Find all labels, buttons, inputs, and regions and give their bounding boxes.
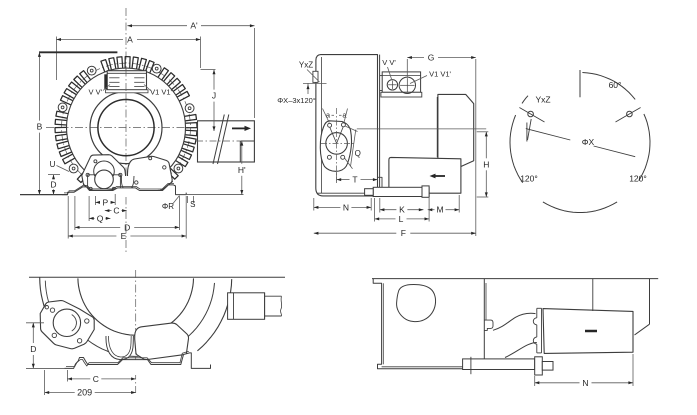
svg-text:ΦX–3x120°: ΦX–3x120° bbox=[277, 96, 316, 105]
svg-text:N: N bbox=[343, 202, 349, 212]
svg-text:120°: 120° bbox=[520, 174, 538, 184]
svg-text:209: 209 bbox=[77, 388, 92, 398]
svg-text:A: A bbox=[127, 35, 133, 45]
svg-text:V V': V V' bbox=[89, 87, 103, 96]
svg-text:D: D bbox=[50, 179, 56, 189]
svg-text:C: C bbox=[93, 374, 99, 384]
svg-text:E: E bbox=[121, 231, 127, 241]
svg-text:A': A' bbox=[190, 21, 198, 31]
svg-text:V V': V V' bbox=[382, 58, 396, 67]
svg-text:120°: 120° bbox=[629, 174, 647, 184]
svg-text:H': H' bbox=[238, 165, 246, 175]
svg-text:J: J bbox=[212, 91, 216, 101]
svg-text:YxZ: YxZ bbox=[299, 61, 313, 70]
svg-text:H: H bbox=[483, 159, 489, 169]
svg-text:V1 V1': V1 V1' bbox=[429, 69, 451, 78]
svg-text:N: N bbox=[582, 378, 588, 388]
svg-text:ΦX: ΦX bbox=[582, 137, 595, 147]
svg-text:S: S bbox=[190, 200, 195, 209]
svg-text:Q: Q bbox=[355, 149, 361, 158]
svg-text:Q: Q bbox=[97, 213, 104, 223]
svg-text:B: B bbox=[37, 122, 43, 132]
svg-text:M: M bbox=[436, 205, 443, 215]
svg-text:G: G bbox=[428, 53, 435, 63]
svg-text:YxZ: YxZ bbox=[535, 95, 550, 105]
svg-text:V1 V1': V1 V1' bbox=[150, 87, 172, 96]
svg-text:P: P bbox=[102, 197, 108, 207]
svg-text:L: L bbox=[399, 214, 404, 224]
svg-text:C: C bbox=[113, 206, 119, 216]
svg-text:U: U bbox=[50, 160, 56, 169]
svg-text:ΦR: ΦR bbox=[162, 202, 174, 211]
svg-text:60°: 60° bbox=[609, 80, 622, 90]
svg-text:F: F bbox=[401, 228, 406, 238]
svg-text:T: T bbox=[352, 175, 357, 185]
svg-text:D: D bbox=[30, 344, 36, 354]
